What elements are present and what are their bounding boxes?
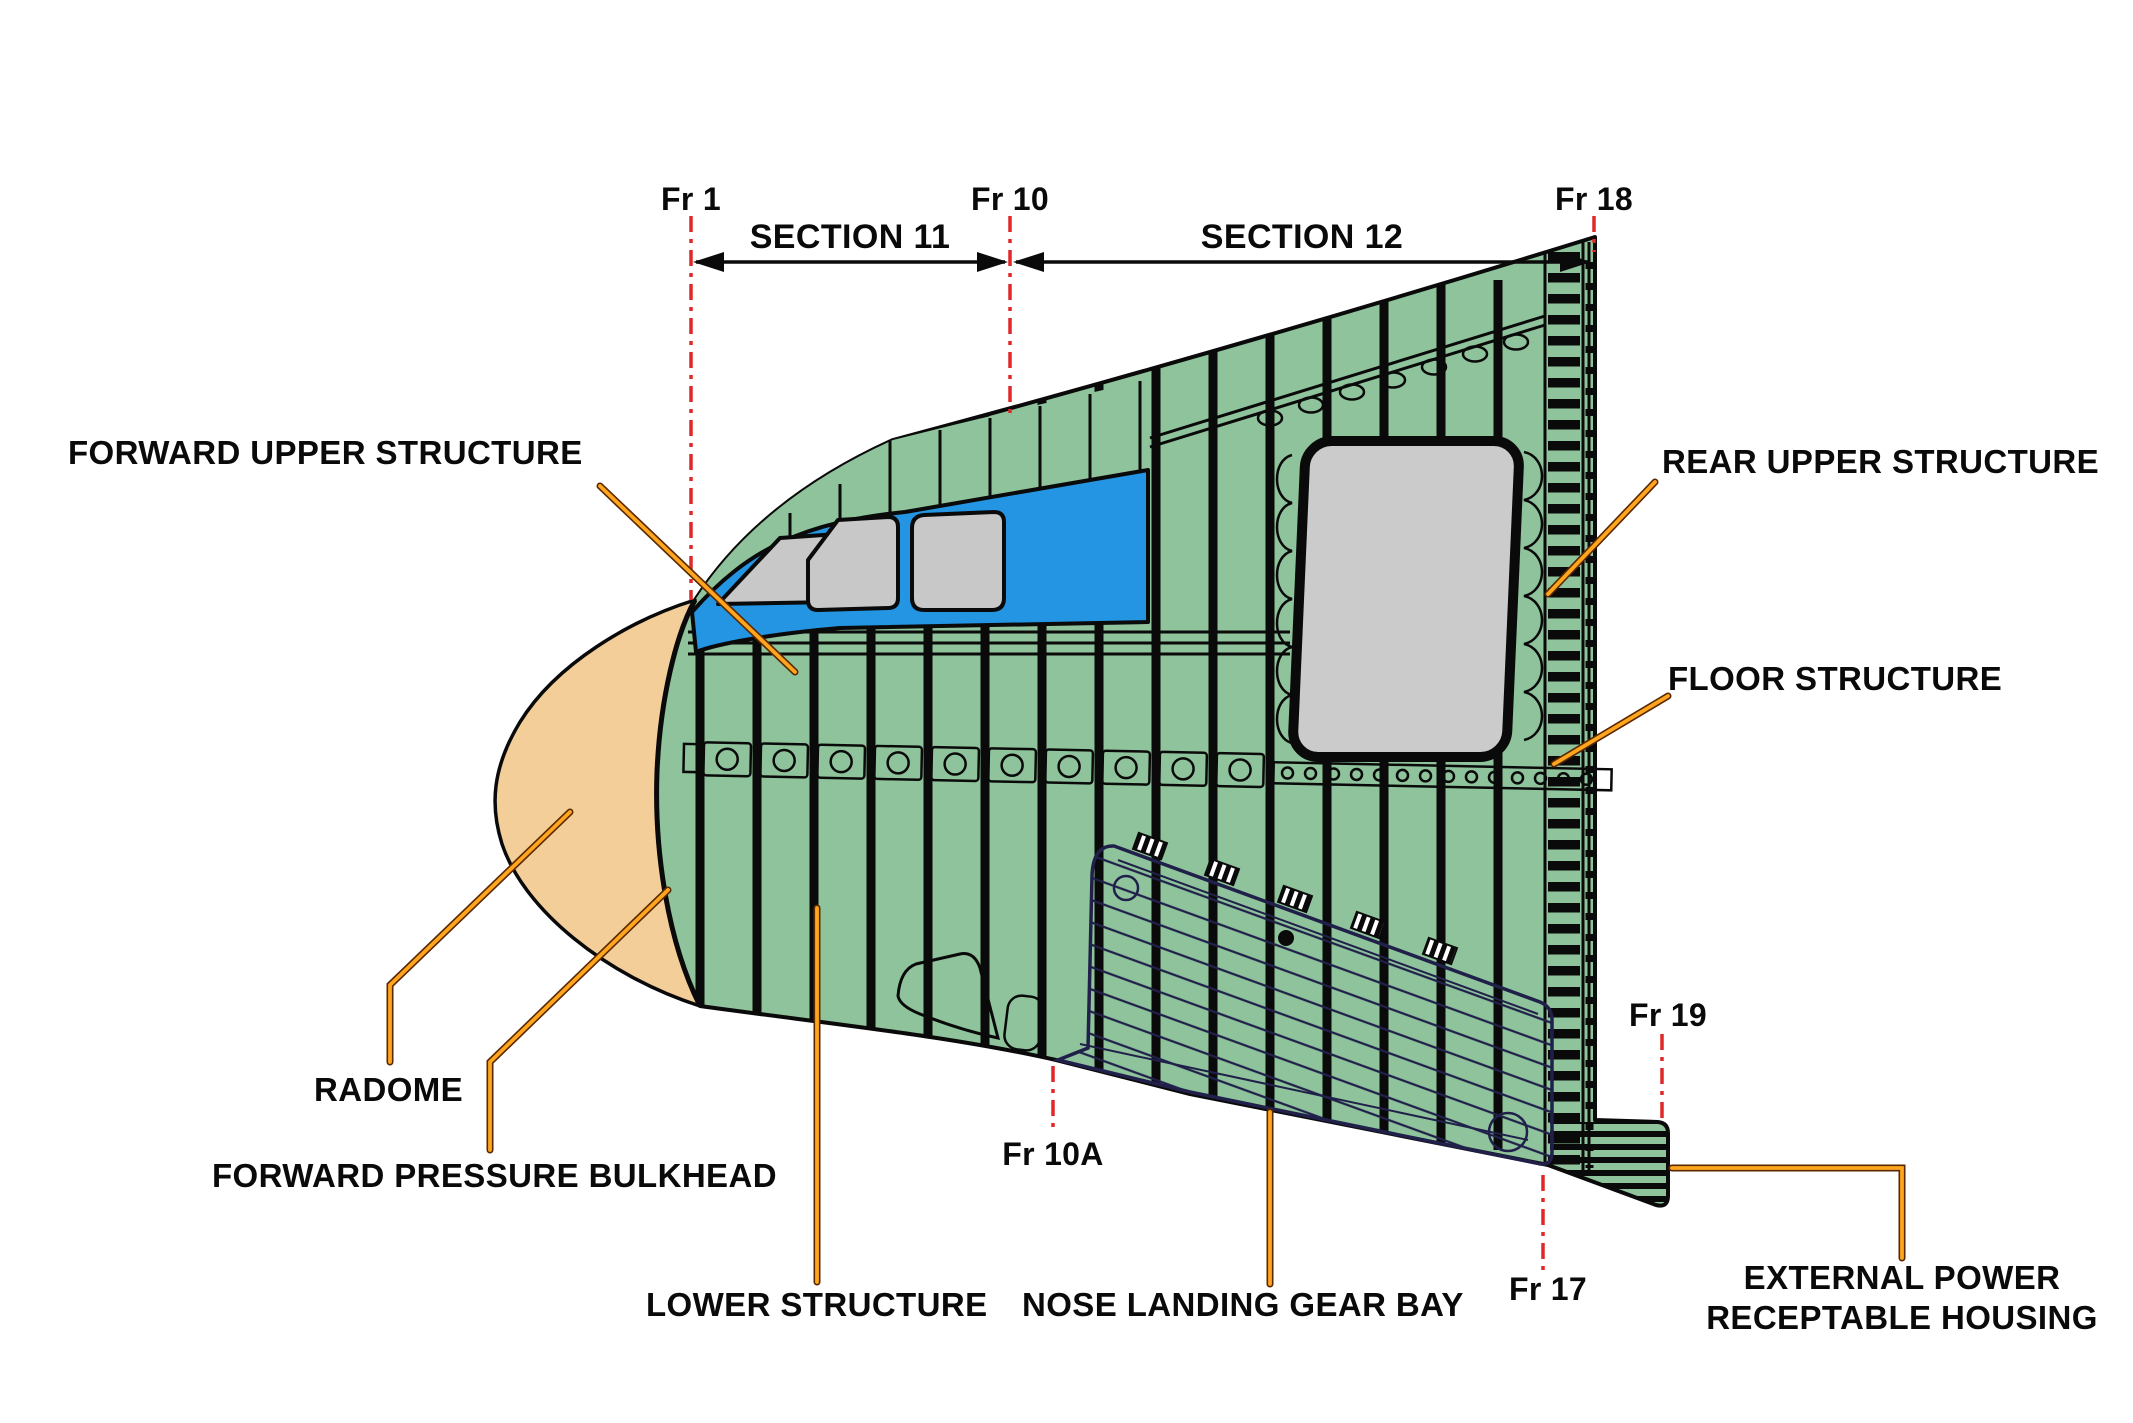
external-power-label-line2: RECEPTABLE HOUSING (1706, 1299, 2098, 1336)
fuselage-structure-diagram: Fr 1 Fr 10 Fr 18 SECTION 11 SECTION 12 F… (0, 0, 2133, 1423)
lower-structure-label: LOWER STRUCTURE (646, 1286, 987, 1323)
forward-upper-structure-label: FORWARD UPPER STRUCTURE (68, 434, 583, 471)
gear-bay-dot (1278, 930, 1294, 946)
external-power-label-line1: EXTERNAL POWER (1744, 1259, 2061, 1296)
fr10a-label: Fr 10A (1002, 1136, 1103, 1172)
fr18-label: Fr 18 (1555, 181, 1633, 217)
arrowhead-left-s12 (1013, 252, 1044, 272)
diagram-canvas: Fr 1 Fr 10 Fr 18 SECTION 11 SECTION 12 F… (0, 0, 2133, 1423)
rear-frame-ladder (1545, 240, 1668, 1208)
fr10-label: Fr 10 (971, 181, 1049, 217)
leader-external-power (1672, 1168, 1902, 1258)
floor-structure-label: FLOOR STRUCTURE (1668, 660, 2002, 697)
section12-label: SECTION 12 (1201, 218, 1403, 256)
arrowhead-right-s11 (977, 252, 1008, 272)
rear-upper-structure-label: REAR UPPER STRUCTURE (1662, 443, 2099, 480)
fr19-label: Fr 19 (1629, 997, 1707, 1033)
section11-label: SECTION 11 (750, 218, 951, 256)
windshield-pane-3 (912, 512, 1004, 610)
nose-landing-gear-bay-label: NOSE LANDING GEAR BAY (1022, 1286, 1464, 1323)
door-opening (1277, 441, 1542, 757)
radome-label: RADOME (314, 1071, 463, 1108)
arrowhead-left-s11 (693, 252, 724, 272)
forward-pressure-bulkhead-label: FORWARD PRESSURE BULKHEAD (212, 1157, 777, 1194)
fr17-label: Fr 17 (1509, 1271, 1587, 1307)
fr1-label: Fr 1 (661, 181, 721, 217)
fuselage-structure (495, 237, 1668, 1208)
